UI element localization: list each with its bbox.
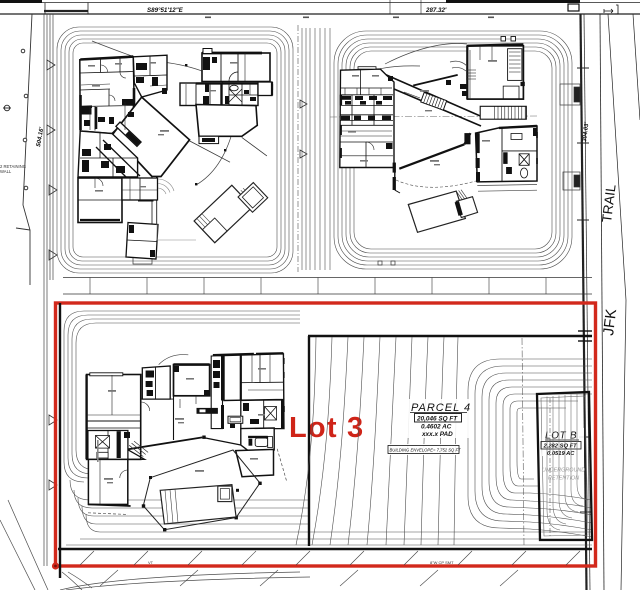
svg-text:WALL: WALL [0,169,12,174]
svg-text:JFK: JFK [600,308,620,337]
svg-text:287.32': 287.32' [425,7,447,14]
svg-text:VT: VT [148,560,154,565]
svg-text:0.4602 AC: 0.4602 AC [421,424,452,431]
svg-text:xxx.x PAD: xxx.x PAD [421,431,453,438]
svg-text:UNDERGROUND: UNDERGROUND [542,468,585,474]
svg-text:BUILDING ENVELOPE= 7,752 SQ FT: BUILDING ENVELOPE= 7,752 SQ FT [390,447,462,452]
svg-text:20,046 SQ FT: 20,046 SQ FT [416,416,458,423]
svg-text:2,282 SQ FT: 2,282 SQ FT [543,444,578,450]
svg-text:8"W CP SMT: 8"W CP SMT [430,560,454,565]
svg-text:Lot 3: Lot 3 [289,412,364,444]
svg-text:RETENTION: RETENTION [548,476,579,482]
svg-text:S89°51'12"E: S89°51'12"E [147,7,184,14]
